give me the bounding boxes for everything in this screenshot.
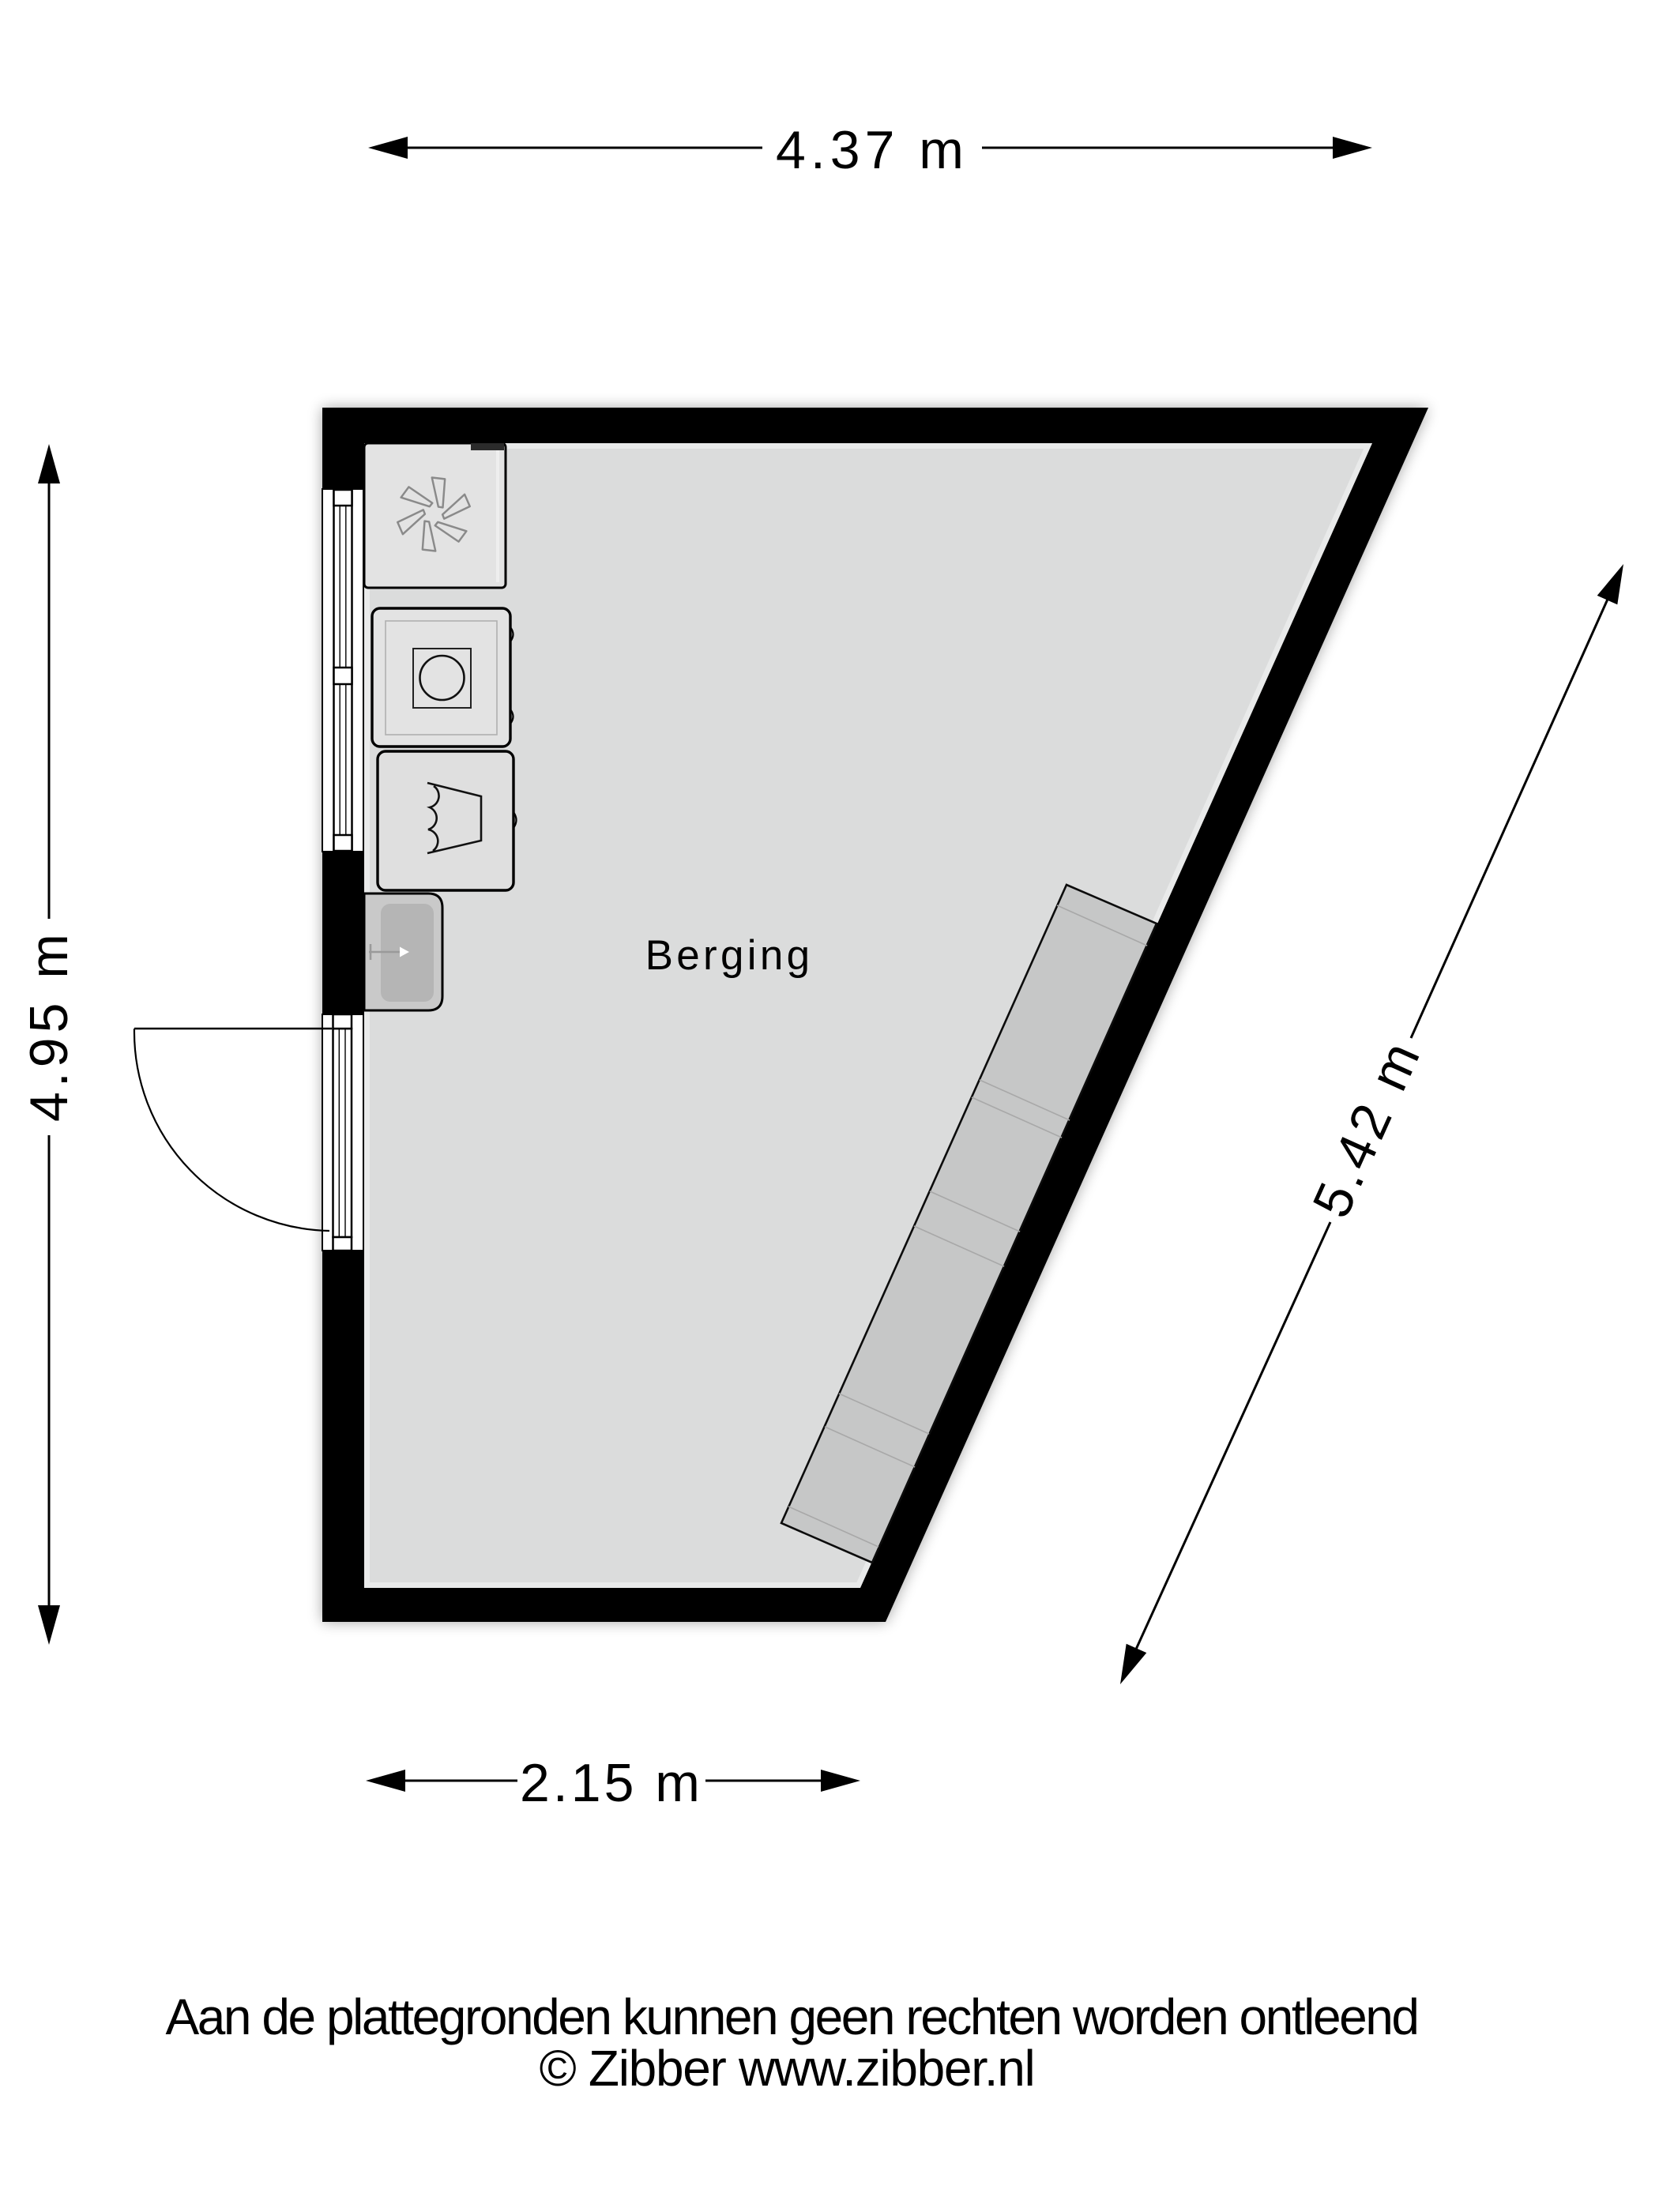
svg-text:Aan de plattegronden kunnen ge: Aan de plattegronden kunnen geen rechten… <box>165 1988 1417 2045</box>
svg-text:2.15 m: 2.15 m <box>520 1753 703 1813</box>
svg-text:© Zibber www.zibber.nl: © Zibber www.zibber.nl <box>540 2040 1035 2097</box>
svg-text:4.37 m: 4.37 m <box>776 120 969 180</box>
svg-text:4.95 m: 4.95 m <box>19 929 79 1122</box>
svg-text:Berging: Berging <box>645 932 814 979</box>
